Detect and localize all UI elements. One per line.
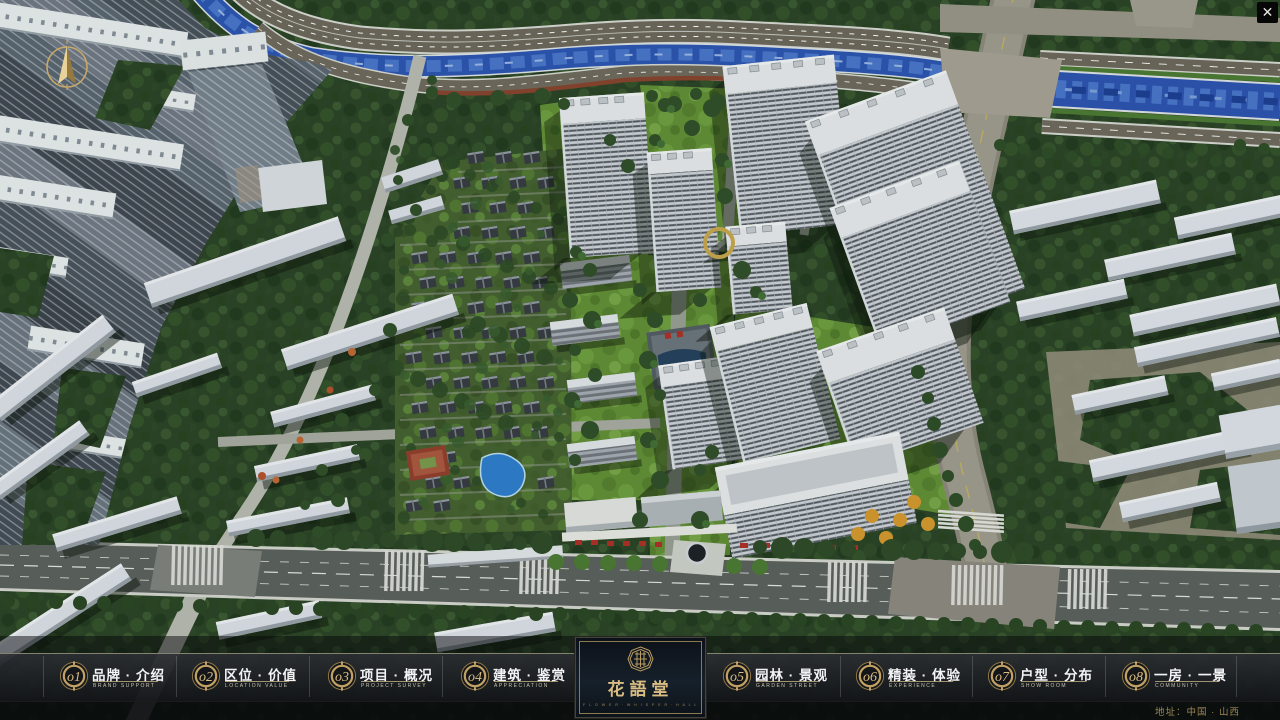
svg-text:o1: o1 <box>67 670 81 685</box>
svg-text:o2: o2 <box>199 670 213 685</box>
svg-text:o4: o4 <box>468 670 482 685</box>
svg-text:o5: o5 <box>730 670 744 685</box>
svg-text:o7: o7 <box>995 670 1010 685</box>
svg-text:o8: o8 <box>1129 670 1143 685</box>
svg-text:o6: o6 <box>863 670 877 685</box>
svg-text:花語堂: 花語堂 <box>608 679 674 699</box>
svg-text:F L O W E R · W H I S P E R ·: F L O W E R · W H I S P E R · H A L L <box>583 703 698 707</box>
svg-text:o3: o3 <box>335 670 349 685</box>
